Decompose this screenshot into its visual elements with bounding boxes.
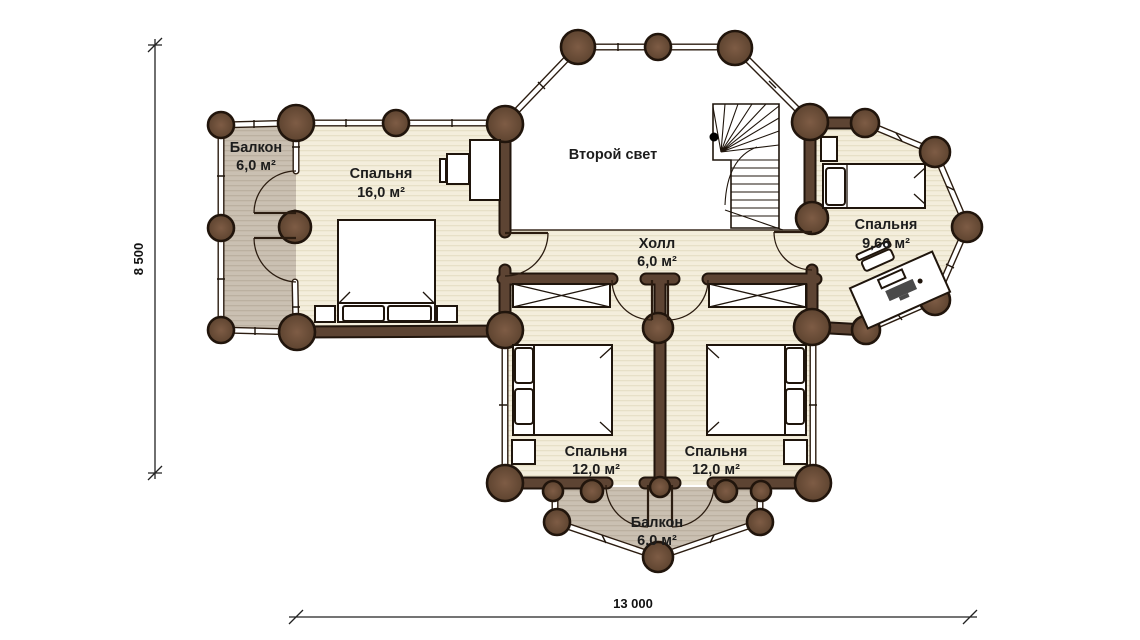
pillow: [786, 348, 804, 383]
wardrobe-right: [709, 284, 806, 307]
blanket: [534, 345, 612, 435]
room-name: Балкон: [230, 140, 282, 156]
blanket: [707, 345, 785, 435]
pillow: [515, 389, 533, 424]
room-area: 9,66 м²: [862, 236, 910, 252]
room-name: Холл: [639, 236, 675, 252]
room-name: Спальня: [565, 444, 628, 460]
label-second-light: Второй свет: [569, 147, 657, 163]
pillow: [343, 306, 384, 321]
height-dimension-label: 8 500: [131, 243, 146, 276]
room-area: 6,0 м²: [236, 158, 276, 174]
pillow: [826, 168, 845, 205]
room-name: Спальня: [685, 444, 748, 460]
room-name: Спальня: [855, 217, 918, 233]
dimension-vertical: 8 500: [131, 38, 162, 480]
floor-plan: Балкон 6,0 м² Спальня 16,0 м² Второй све…: [0, 0, 1140, 640]
nightstand: [821, 137, 837, 161]
pillow: [515, 348, 533, 383]
nightstand: [512, 440, 535, 464]
nightstand: [784, 440, 807, 464]
room-area: 12,0 м²: [572, 462, 620, 478]
room-area: 6,0 м²: [637, 254, 677, 270]
blanket: [338, 220, 435, 303]
width-dimension-label: 13 000: [613, 596, 653, 611]
room-area: 6,0 м²: [637, 533, 677, 549]
dimension-horizontal: 13 000: [289, 596, 977, 624]
room-area: 12,0 м²: [692, 462, 740, 478]
stair-newel-post: [710, 133, 719, 142]
room-area: 16,0 м²: [357, 185, 405, 201]
nightstand: [315, 306, 335, 322]
pillow: [786, 389, 804, 424]
wardrobe-left: [513, 284, 610, 307]
nightstand: [437, 306, 457, 322]
pillow: [388, 306, 431, 321]
room-name: Спальня: [350, 166, 413, 182]
dresser: [470, 140, 500, 200]
tv: [447, 154, 469, 184]
floor-plan-drawing: Балкон 6,0 м² Спальня 16,0 м² Второй све…: [0, 0, 1140, 640]
room-name: Второй свет: [569, 147, 657, 163]
room-name: Балкон: [631, 515, 683, 531]
